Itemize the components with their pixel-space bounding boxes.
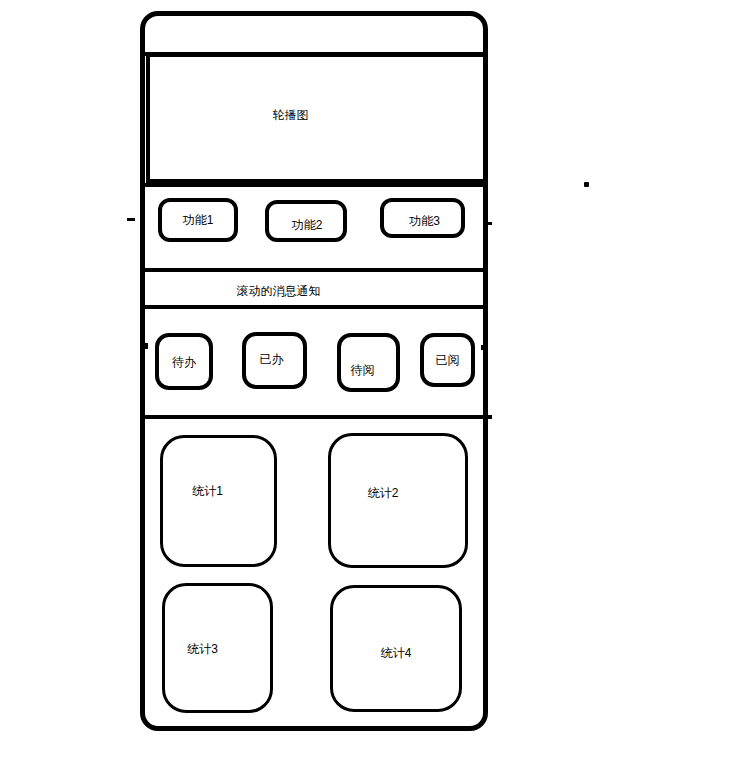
functions-top-divider — [142, 183, 486, 187]
notice-bottom-divider — [142, 305, 486, 309]
task-button-read-label: 已阅 — [436, 354, 460, 366]
notice-bar[interactable]: 滚动的消息通知 — [146, 272, 487, 305]
right-tick-mark-functions — [484, 222, 492, 225]
task-button-todo-label: 待办 — [172, 356, 196, 368]
wireframe-canvas: 轮播图 功能1 功能2 功能3 滚动的消息通知 待办 已办 待阅 已阅 统计1 … — [0, 0, 739, 768]
notice-label: 滚动的消息通知 — [237, 285, 321, 297]
left-tick-mark-functions — [127, 218, 135, 221]
carousel-label: 轮播图 — [273, 109, 309, 121]
task-button-done-label: 已办 — [260, 353, 284, 365]
task-button-todo[interactable]: 待办 — [155, 333, 213, 390]
left-tick-mark-tasks — [145, 343, 148, 349]
function-button-3[interactable]: 功能3 — [380, 198, 465, 238]
task-button-toread[interactable]: 待阅 — [337, 333, 400, 392]
function-button-2[interactable]: 功能2 — [265, 200, 347, 242]
stat-box-2[interactable]: 统计2 — [328, 433, 468, 568]
function-button-2-label: 功能2 — [292, 219, 323, 231]
task-button-done[interactable]: 已办 — [242, 332, 307, 389]
function-button-1-label: 功能1 — [183, 214, 214, 226]
right-tick-mark-tasks — [481, 345, 485, 350]
function-button-3-label: 功能3 — [409, 215, 440, 227]
stat-box-2-label: 统计2 — [368, 487, 399, 499]
function-button-1[interactable]: 功能1 — [158, 198, 238, 242]
task-button-toread-label: 待阅 — [351, 364, 375, 376]
stray-dot-mark — [584, 182, 589, 187]
stat-box-4[interactable]: 统计4 — [330, 585, 462, 712]
tasks-bottom-divider — [142, 415, 492, 419]
carousel-box[interactable]: 轮播图 — [146, 53, 487, 183]
stat-box-3[interactable]: 统计3 — [162, 583, 273, 713]
stat-box-3-label: 统计3 — [187, 643, 218, 655]
stat-box-4-label: 统计4 — [381, 647, 412, 659]
stat-box-1-label: 统计1 — [192, 485, 223, 497]
stat-box-1[interactable]: 统计1 — [160, 435, 277, 567]
task-button-read[interactable]: 已阅 — [420, 333, 475, 387]
